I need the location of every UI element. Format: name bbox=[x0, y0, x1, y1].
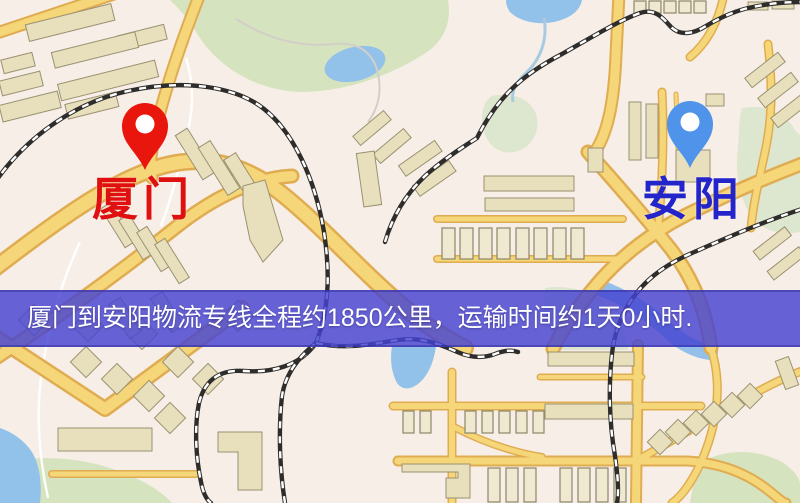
route-info-banner: 厦门到安阳物流专线全程约1850公里，运输时间约1天0小时. bbox=[0, 290, 800, 347]
origin-city-label: 厦门 bbox=[92, 176, 194, 222]
destination-pin-hole bbox=[681, 113, 700, 132]
destination-city-label: 安阳 bbox=[642, 176, 744, 222]
origin-pin-hole bbox=[136, 115, 155, 134]
route-info-text: 厦门到安阳物流专线全程约1850公里，运输时间约1天0小时. bbox=[0, 290, 800, 347]
map-background bbox=[0, 0, 800, 503]
logistics-route-map: 厦门 安阳 厦门到安阳物流专线全程约1850公里，运输时间约1天0小时. bbox=[0, 0, 800, 503]
